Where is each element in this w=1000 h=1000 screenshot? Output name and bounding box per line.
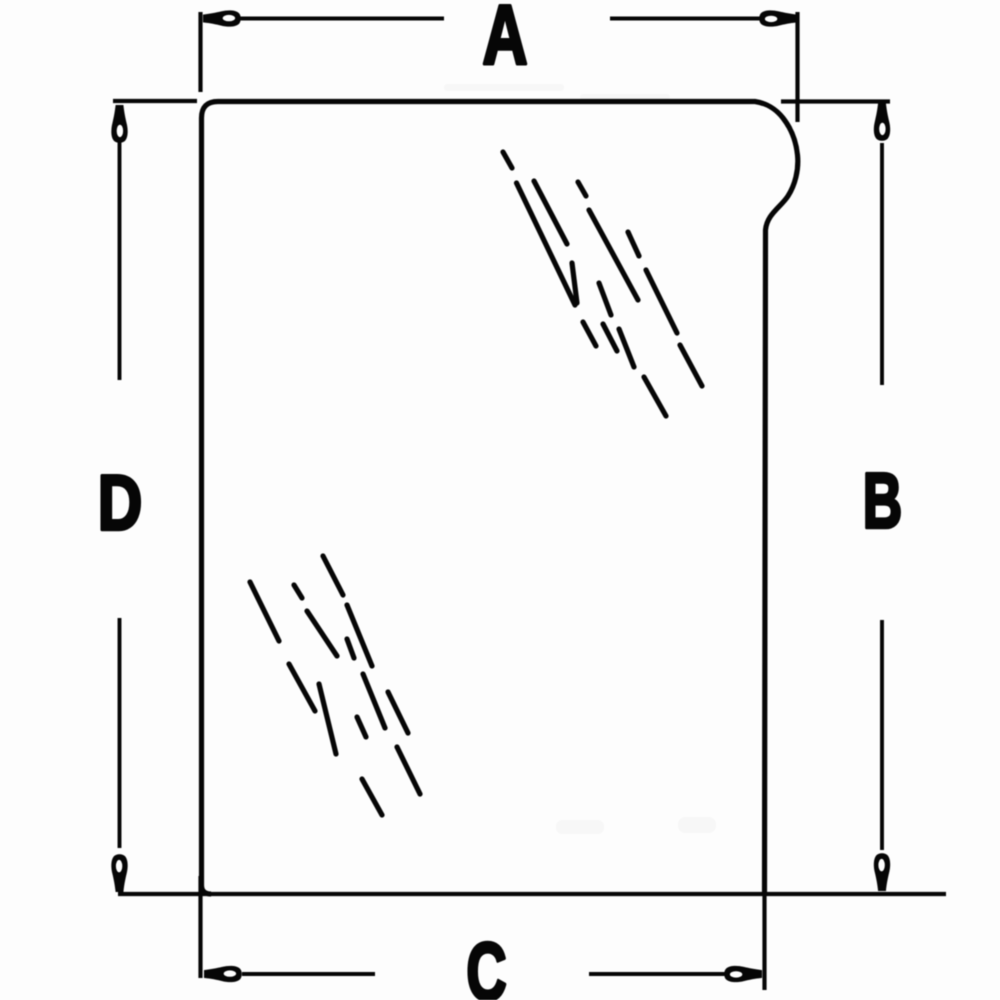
- svg-text:C: C: [466, 926, 506, 1000]
- svg-text:A: A: [482, 0, 527, 82]
- svg-text:B: B: [863, 458, 902, 545]
- svg-text:D: D: [98, 458, 142, 546]
